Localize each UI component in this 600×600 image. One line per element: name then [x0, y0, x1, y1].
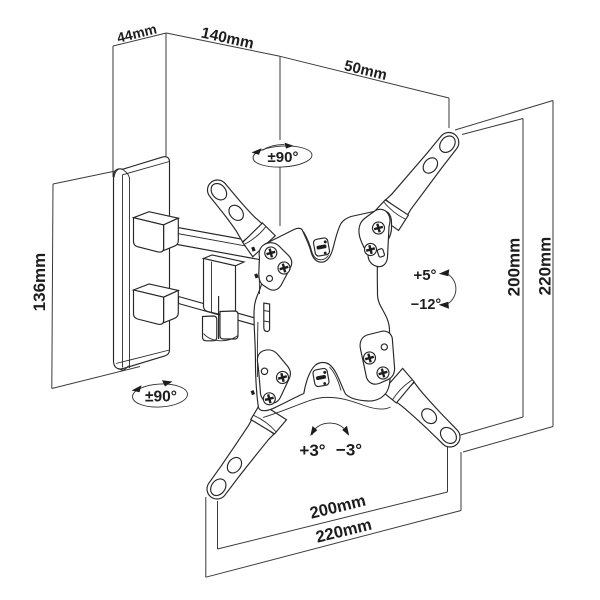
svg-text:200mm: 200mm — [505, 238, 524, 297]
svg-text:±90°: ±90° — [268, 149, 299, 166]
svg-text:+5°: +5° — [413, 267, 436, 284]
svg-text:−12°: −12° — [411, 297, 442, 313]
svg-text:136mm: 136mm — [30, 253, 49, 312]
svg-text:+3°: +3° — [299, 441, 325, 460]
svg-text:220mm: 220mm — [536, 237, 555, 296]
svg-text:−3°: −3° — [336, 441, 362, 460]
svg-text:±90°: ±90° — [145, 389, 177, 406]
